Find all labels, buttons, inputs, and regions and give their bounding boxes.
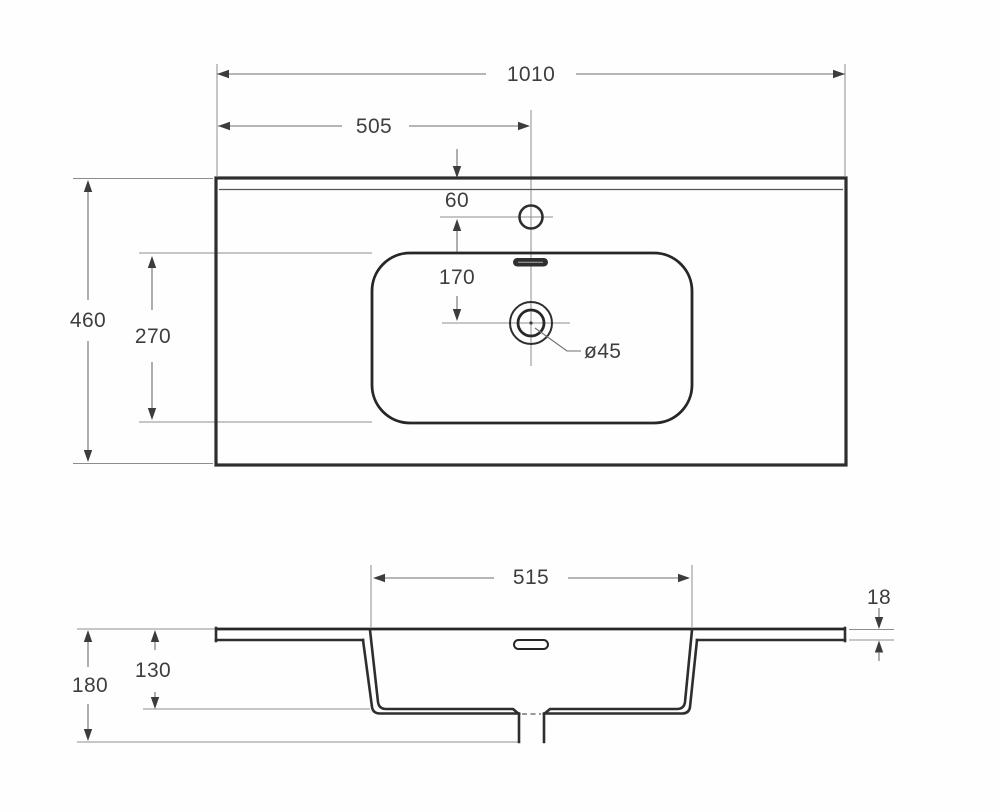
dim-label-overall-height: 180 (72, 674, 108, 697)
dim-label-overall-depth: 460 (70, 309, 106, 332)
arrowhead-right (518, 122, 530, 130)
dim-label-drain-diameter: ø45 (584, 340, 621, 363)
basin-outline (372, 253, 692, 423)
dim-label-basin-width: 515 (513, 566, 549, 589)
arrowhead-left (217, 70, 229, 78)
dim-label-half-width: 505 (356, 115, 392, 138)
basin-outer-left-wall-and-pipe (363, 640, 519, 742)
arrowhead-left (373, 574, 385, 582)
dim-label-faucet-to-drain: 170 (439, 266, 475, 289)
dim-label-overall-width: 1010 (507, 63, 555, 86)
arrowhead-down (84, 729, 92, 741)
arrowhead-up (453, 219, 461, 231)
arrowhead-up (151, 630, 159, 642)
drawing-svg: 1010 505 60 170 460 270 ø45 (0, 0, 1000, 812)
arrowhead-right (833, 70, 845, 78)
arrowhead-down (453, 166, 461, 178)
arrowhead-up (148, 256, 156, 268)
technical-drawing-sink: 1010 505 60 170 460 270 ø45 (0, 0, 1000, 812)
dim-label-rim-thickness: 18 (867, 586, 891, 609)
overflow-slot-section (514, 640, 548, 649)
arrowhead-down (453, 309, 461, 321)
dim-label-basin-height: 130 (135, 659, 171, 682)
arrowhead-left (218, 122, 230, 130)
arrowhead-down (151, 697, 159, 709)
arrowhead-up (875, 641, 883, 653)
arrowhead-up (84, 180, 92, 192)
dim-label-faucet-offset: 60 (445, 189, 469, 212)
arrowhead-down (84, 450, 92, 462)
basin-outer-right-wall-and-pipe (544, 640, 697, 742)
arrowhead-right (678, 574, 690, 582)
basin-inner-left-wall (370, 630, 519, 714)
top-view: 1010 505 60 170 460 270 ø45 (70, 63, 846, 465)
section-view: 515 18 180 130 (72, 565, 894, 742)
basin-inner-right-wall (544, 630, 692, 714)
arrowhead-down (148, 408, 156, 420)
arrowhead-up (84, 630, 92, 642)
drain-center-dot (529, 321, 532, 324)
dim-label-basin-depth: 270 (135, 325, 171, 348)
arrowhead-down (875, 617, 883, 629)
